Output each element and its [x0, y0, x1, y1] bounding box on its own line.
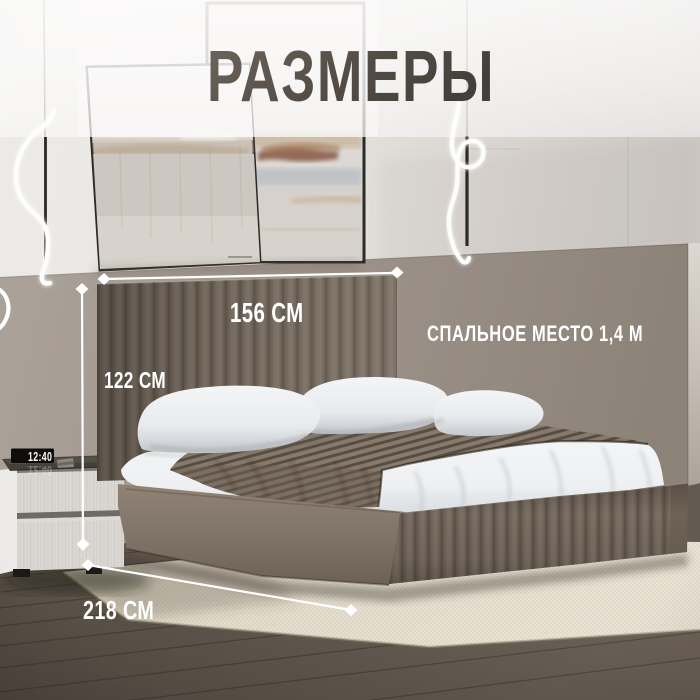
svg-text:156 СМ: 156 СМ: [230, 298, 303, 329]
svg-text:218 СМ: 218 СМ: [83, 595, 154, 624]
svg-text:РАЗМЕРЫ: РАЗМЕРЫ: [207, 36, 495, 117]
svg-text:СПАЛЬНОЕ МЕСТО 1,4 М: СПАЛЬНОЕ МЕСТО 1,4 М: [427, 322, 643, 347]
svg-text:122 СМ: 122 СМ: [104, 367, 166, 393]
